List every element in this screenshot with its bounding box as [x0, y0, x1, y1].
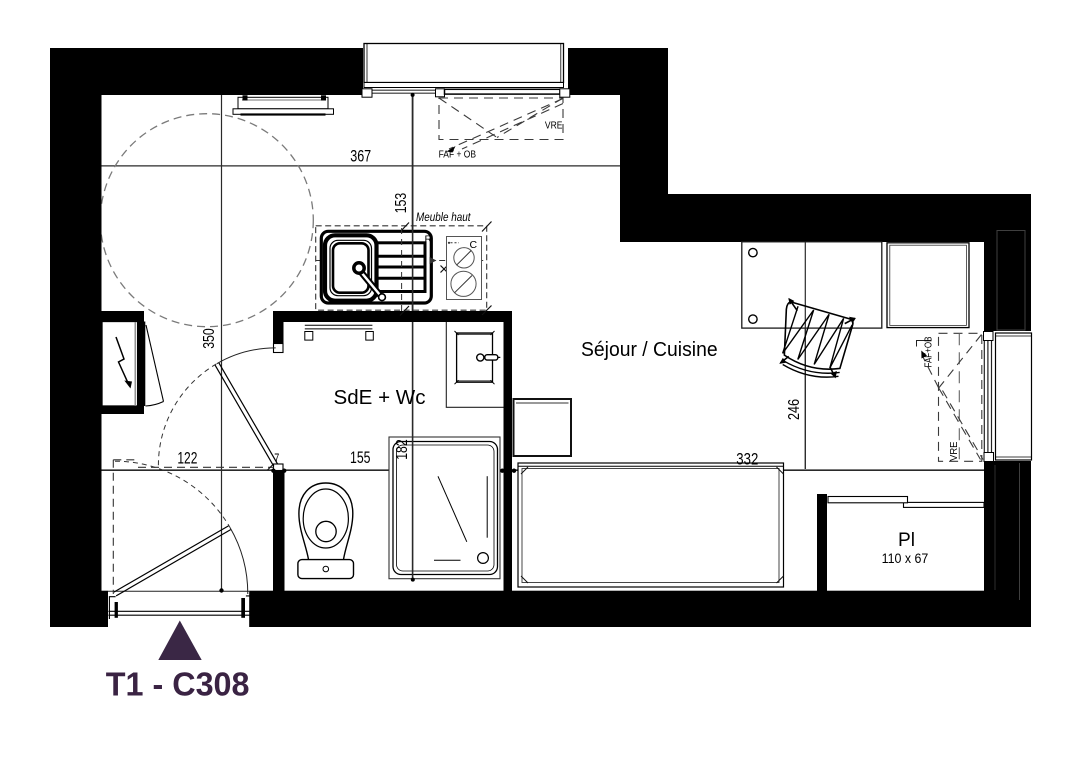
svg-text:7: 7: [274, 452, 279, 466]
svg-text:350: 350: [201, 328, 218, 349]
svg-text:VRE: VRE: [545, 120, 563, 132]
svg-text:T1 - C308: T1 - C308: [106, 666, 250, 703]
svg-text:FAF+OB: FAF+OB: [923, 337, 935, 368]
svg-text:332: 332: [736, 450, 758, 469]
svg-text:155: 155: [350, 448, 371, 467]
svg-text:SdE + Wc: SdE + Wc: [334, 387, 426, 409]
svg-text:Séjour / Cuisine: Séjour / Cuisine: [581, 339, 718, 361]
svg-text:VRE: VRE: [948, 442, 960, 462]
svg-text:FAF + OB: FAF + OB: [439, 149, 476, 161]
svg-text:Pl: Pl: [898, 530, 915, 551]
svg-text:182: 182: [394, 439, 411, 460]
svg-text:110 x 67: 110 x 67: [882, 551, 929, 566]
svg-text:Meuble haut: Meuble haut: [416, 212, 471, 224]
svg-text:C: C: [470, 239, 478, 251]
svg-text:122: 122: [177, 449, 197, 468]
svg-text:367: 367: [350, 146, 371, 165]
svg-text:R: R: [425, 234, 433, 246]
svg-text:153: 153: [393, 193, 410, 214]
svg-text:246: 246: [786, 399, 803, 420]
